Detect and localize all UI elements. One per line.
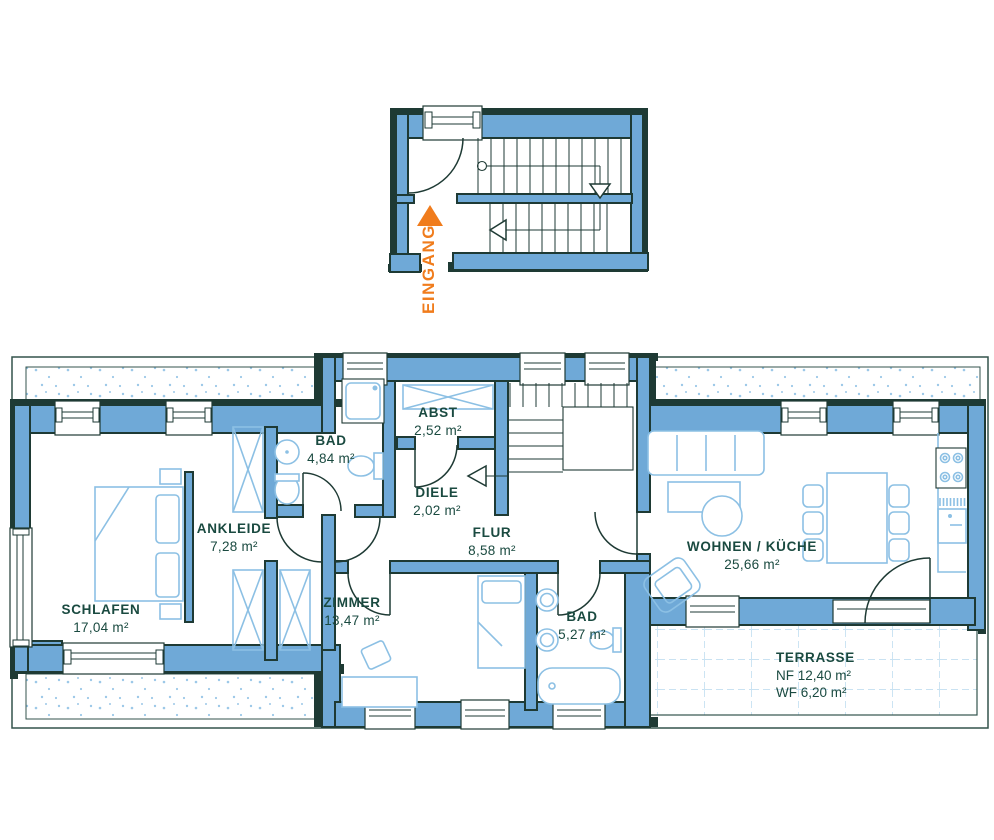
window xyxy=(893,401,939,435)
window xyxy=(55,401,100,435)
room-name: TERRASSE xyxy=(776,650,855,666)
entrance-text: EINGANG xyxy=(419,224,438,314)
desk xyxy=(342,677,417,707)
room-area: 4,84 m² xyxy=(307,450,355,468)
chair xyxy=(889,512,909,534)
room-label-schlafen: SCHLAFEN 17,04 m² xyxy=(62,601,141,637)
window xyxy=(461,700,509,729)
single-bed xyxy=(478,576,525,668)
window xyxy=(520,353,565,385)
room-area: 5,27 m² xyxy=(558,626,606,644)
entrance-arrow-icon xyxy=(417,205,443,226)
room-label-bad-klein: BAD 4,84 m² xyxy=(307,432,355,468)
room-name: BAD xyxy=(315,433,346,448)
terrasse-nf: NF 12,40 m² xyxy=(776,668,855,684)
side-table xyxy=(702,496,742,536)
window-tall-left xyxy=(10,528,32,647)
room-area: 8,58 m² xyxy=(468,542,516,560)
window xyxy=(781,401,827,435)
room-area: 2,52 m² xyxy=(414,422,462,440)
stove xyxy=(936,448,966,488)
floor-plan-page: SCHLAFEN 17,04 m² ANKLEIDE 7,28 m² BAD 4… xyxy=(0,0,994,840)
room-name: ABST xyxy=(418,405,457,420)
stair-treads-lower xyxy=(490,203,607,253)
double-bed xyxy=(95,487,183,601)
entrance-label: EINGANG xyxy=(419,224,439,314)
room-name: FLUR xyxy=(473,525,512,540)
room-name: WOHNEN / KÜCHE xyxy=(687,539,817,554)
roof-stipple-top-left xyxy=(26,367,322,403)
entrance-door xyxy=(408,138,463,193)
terrasse-wf: WF 6,20 m² xyxy=(776,685,855,701)
stairwell-window xyxy=(423,106,482,140)
room-name: BAD xyxy=(566,609,597,624)
room-area: 25,66 m² xyxy=(687,556,817,574)
room-label-bad-gross: BAD 5,27 m² xyxy=(558,608,606,644)
window xyxy=(166,401,212,435)
nightstand xyxy=(160,469,181,484)
room-area: 13,47 m² xyxy=(323,612,380,630)
room-name: ZIMMER xyxy=(323,595,380,610)
chair xyxy=(803,485,823,507)
window xyxy=(63,643,164,674)
shower xyxy=(342,379,384,423)
room-label-abst: ABST 2,52 m² xyxy=(414,404,462,440)
washbasin xyxy=(536,589,558,611)
window xyxy=(585,353,629,385)
room-label-diele: DIELE 2,02 m² xyxy=(413,484,461,520)
room-name: DIELE xyxy=(415,485,458,500)
terrace-door-threshold xyxy=(833,600,930,623)
chair xyxy=(803,512,823,534)
dining-table xyxy=(827,473,887,563)
room-area: 2,02 m² xyxy=(413,502,461,520)
room-label-flur: FLUR 8,58 m² xyxy=(468,524,516,560)
room-area: 7,28 m² xyxy=(197,538,271,556)
window xyxy=(686,596,739,627)
nightstand xyxy=(160,604,181,619)
room-label-ankleide: ANKLEIDE 7,28 m² xyxy=(197,520,271,556)
washbasin xyxy=(536,629,558,651)
bathtub xyxy=(538,668,620,704)
roof-stipple-top-right xyxy=(650,367,980,403)
stair-left-arrow-icon xyxy=(490,220,506,240)
roof-stipple-bottom-left xyxy=(26,674,322,719)
chair xyxy=(889,539,909,561)
room-name: ANKLEIDE xyxy=(197,521,271,536)
room-label-terrasse: TERRASSE NF 12,40 m² WF 6,20 m² xyxy=(776,650,855,701)
room-label-wohnen-kueche: WOHNEN / KÜCHE 25,66 m² xyxy=(687,538,817,574)
furniture-schlafen xyxy=(95,469,183,619)
room-area: 17,04 m² xyxy=(62,619,141,637)
chair xyxy=(889,485,909,507)
room-label-zimmer: ZIMMER 13,47 m² xyxy=(323,594,380,630)
room-name: SCHLAFEN xyxy=(62,602,141,617)
floor-plan-drawing xyxy=(0,0,994,840)
